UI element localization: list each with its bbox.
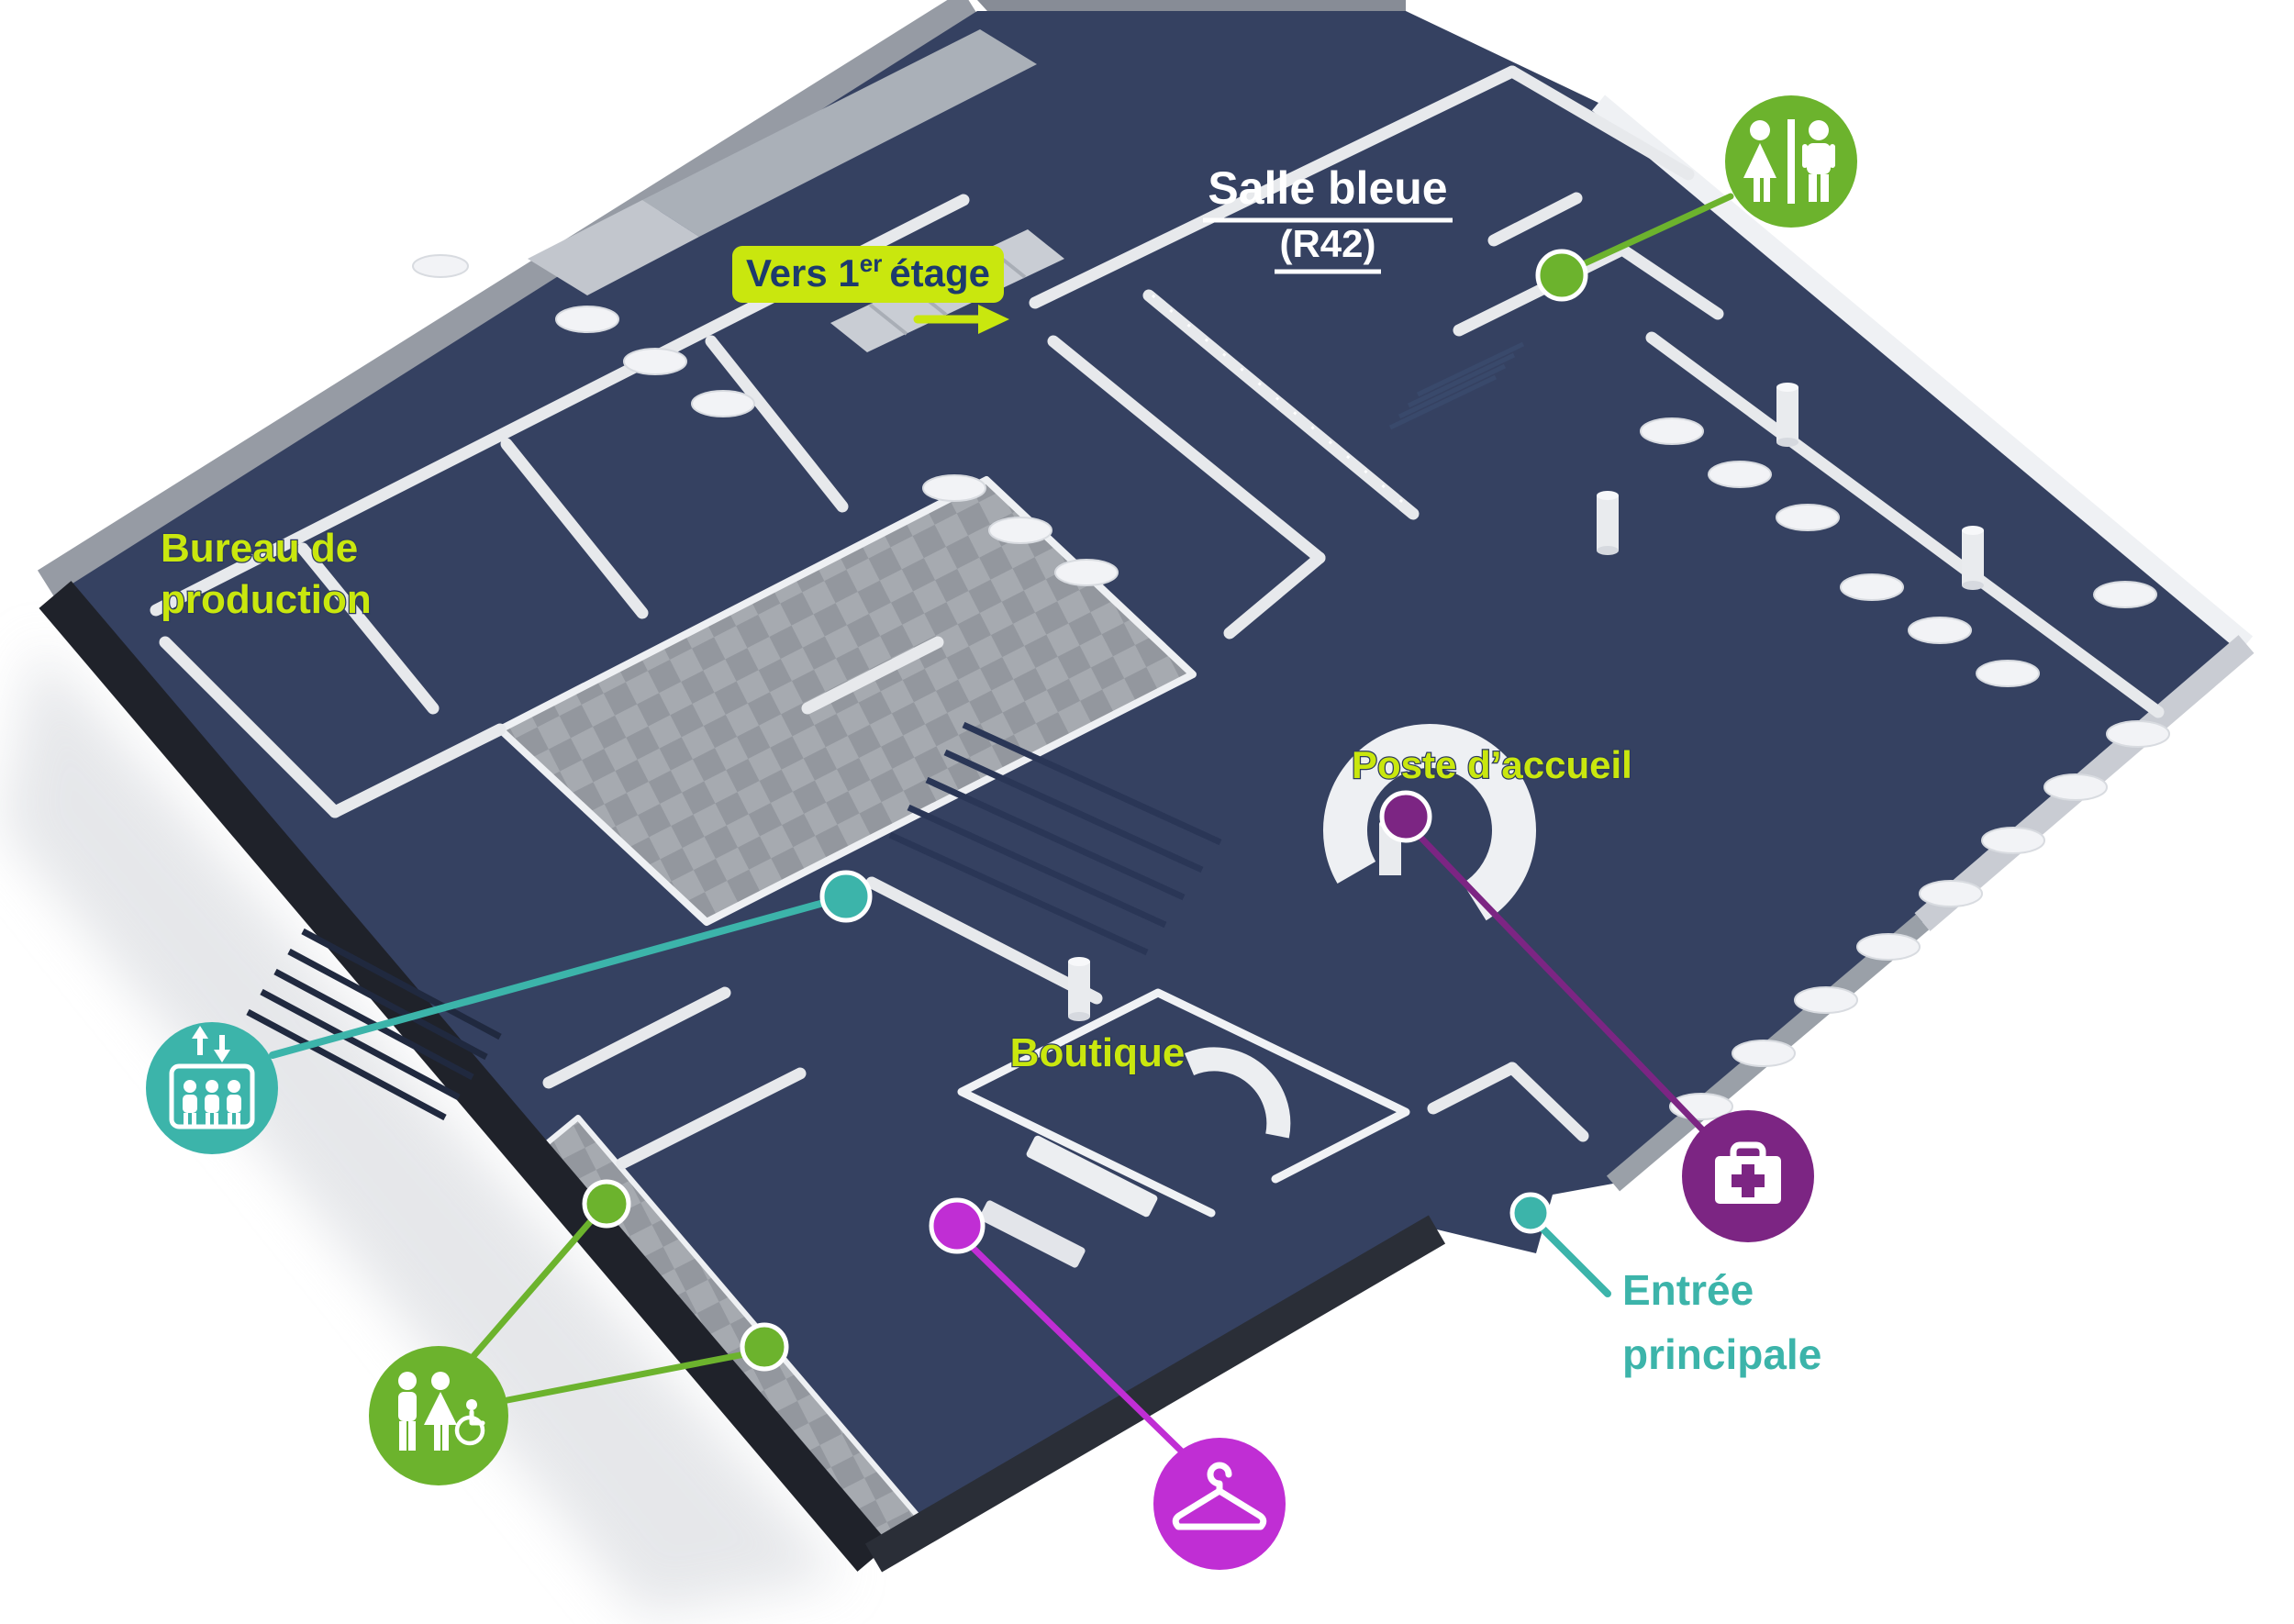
- toilets-icon[interactable]: [1725, 95, 1857, 228]
- toilets-location-dot[interactable]: [1538, 251, 1586, 299]
- bureau-production-label-line1: Bureau de: [161, 526, 358, 571]
- first-aid-icon[interactable]: [1682, 1110, 1814, 1242]
- entree-principale-label-line1: Entrée: [1622, 1266, 1754, 1314]
- building: [46, 0, 2246, 1558]
- family-toilets-location-dot-2[interactable]: [742, 1325, 786, 1369]
- salle-bleue-code: (R42): [1279, 222, 1375, 265]
- elevator-location-dot[interactable]: [822, 873, 870, 920]
- family-toilets-location-dot-1[interactable]: [585, 1182, 629, 1226]
- entrance-location-dot[interactable]: [1512, 1195, 1549, 1231]
- reception-location-dot[interactable]: [1382, 793, 1430, 840]
- cloakroom-icon[interactable]: [1153, 1438, 1286, 1570]
- bureau-production-label-line2: production: [161, 577, 372, 622]
- boutique-label: Boutique: [1010, 1030, 1186, 1075]
- floorplan-page: Salle bleue (R42) Vers 1erétage Bureau d…: [0, 0, 2294, 1624]
- entree-principale-label-line2: principale: [1622, 1330, 1821, 1378]
- cloakroom-location-dot[interactable]: [931, 1200, 983, 1251]
- salle-bleue-label: Salle bleue: [1208, 162, 1447, 214]
- floorplan-map: Salle bleue (R42) Vers 1erétage Bureau d…: [0, 0, 2294, 1624]
- elevator-icon[interactable]: [146, 1022, 278, 1154]
- family-accessible-toilets-icon[interactable]: [369, 1346, 508, 1485]
- poste-accueil-label: Poste d’accueil: [1352, 743, 1632, 786]
- entrance-connector: [1540, 1226, 1608, 1294]
